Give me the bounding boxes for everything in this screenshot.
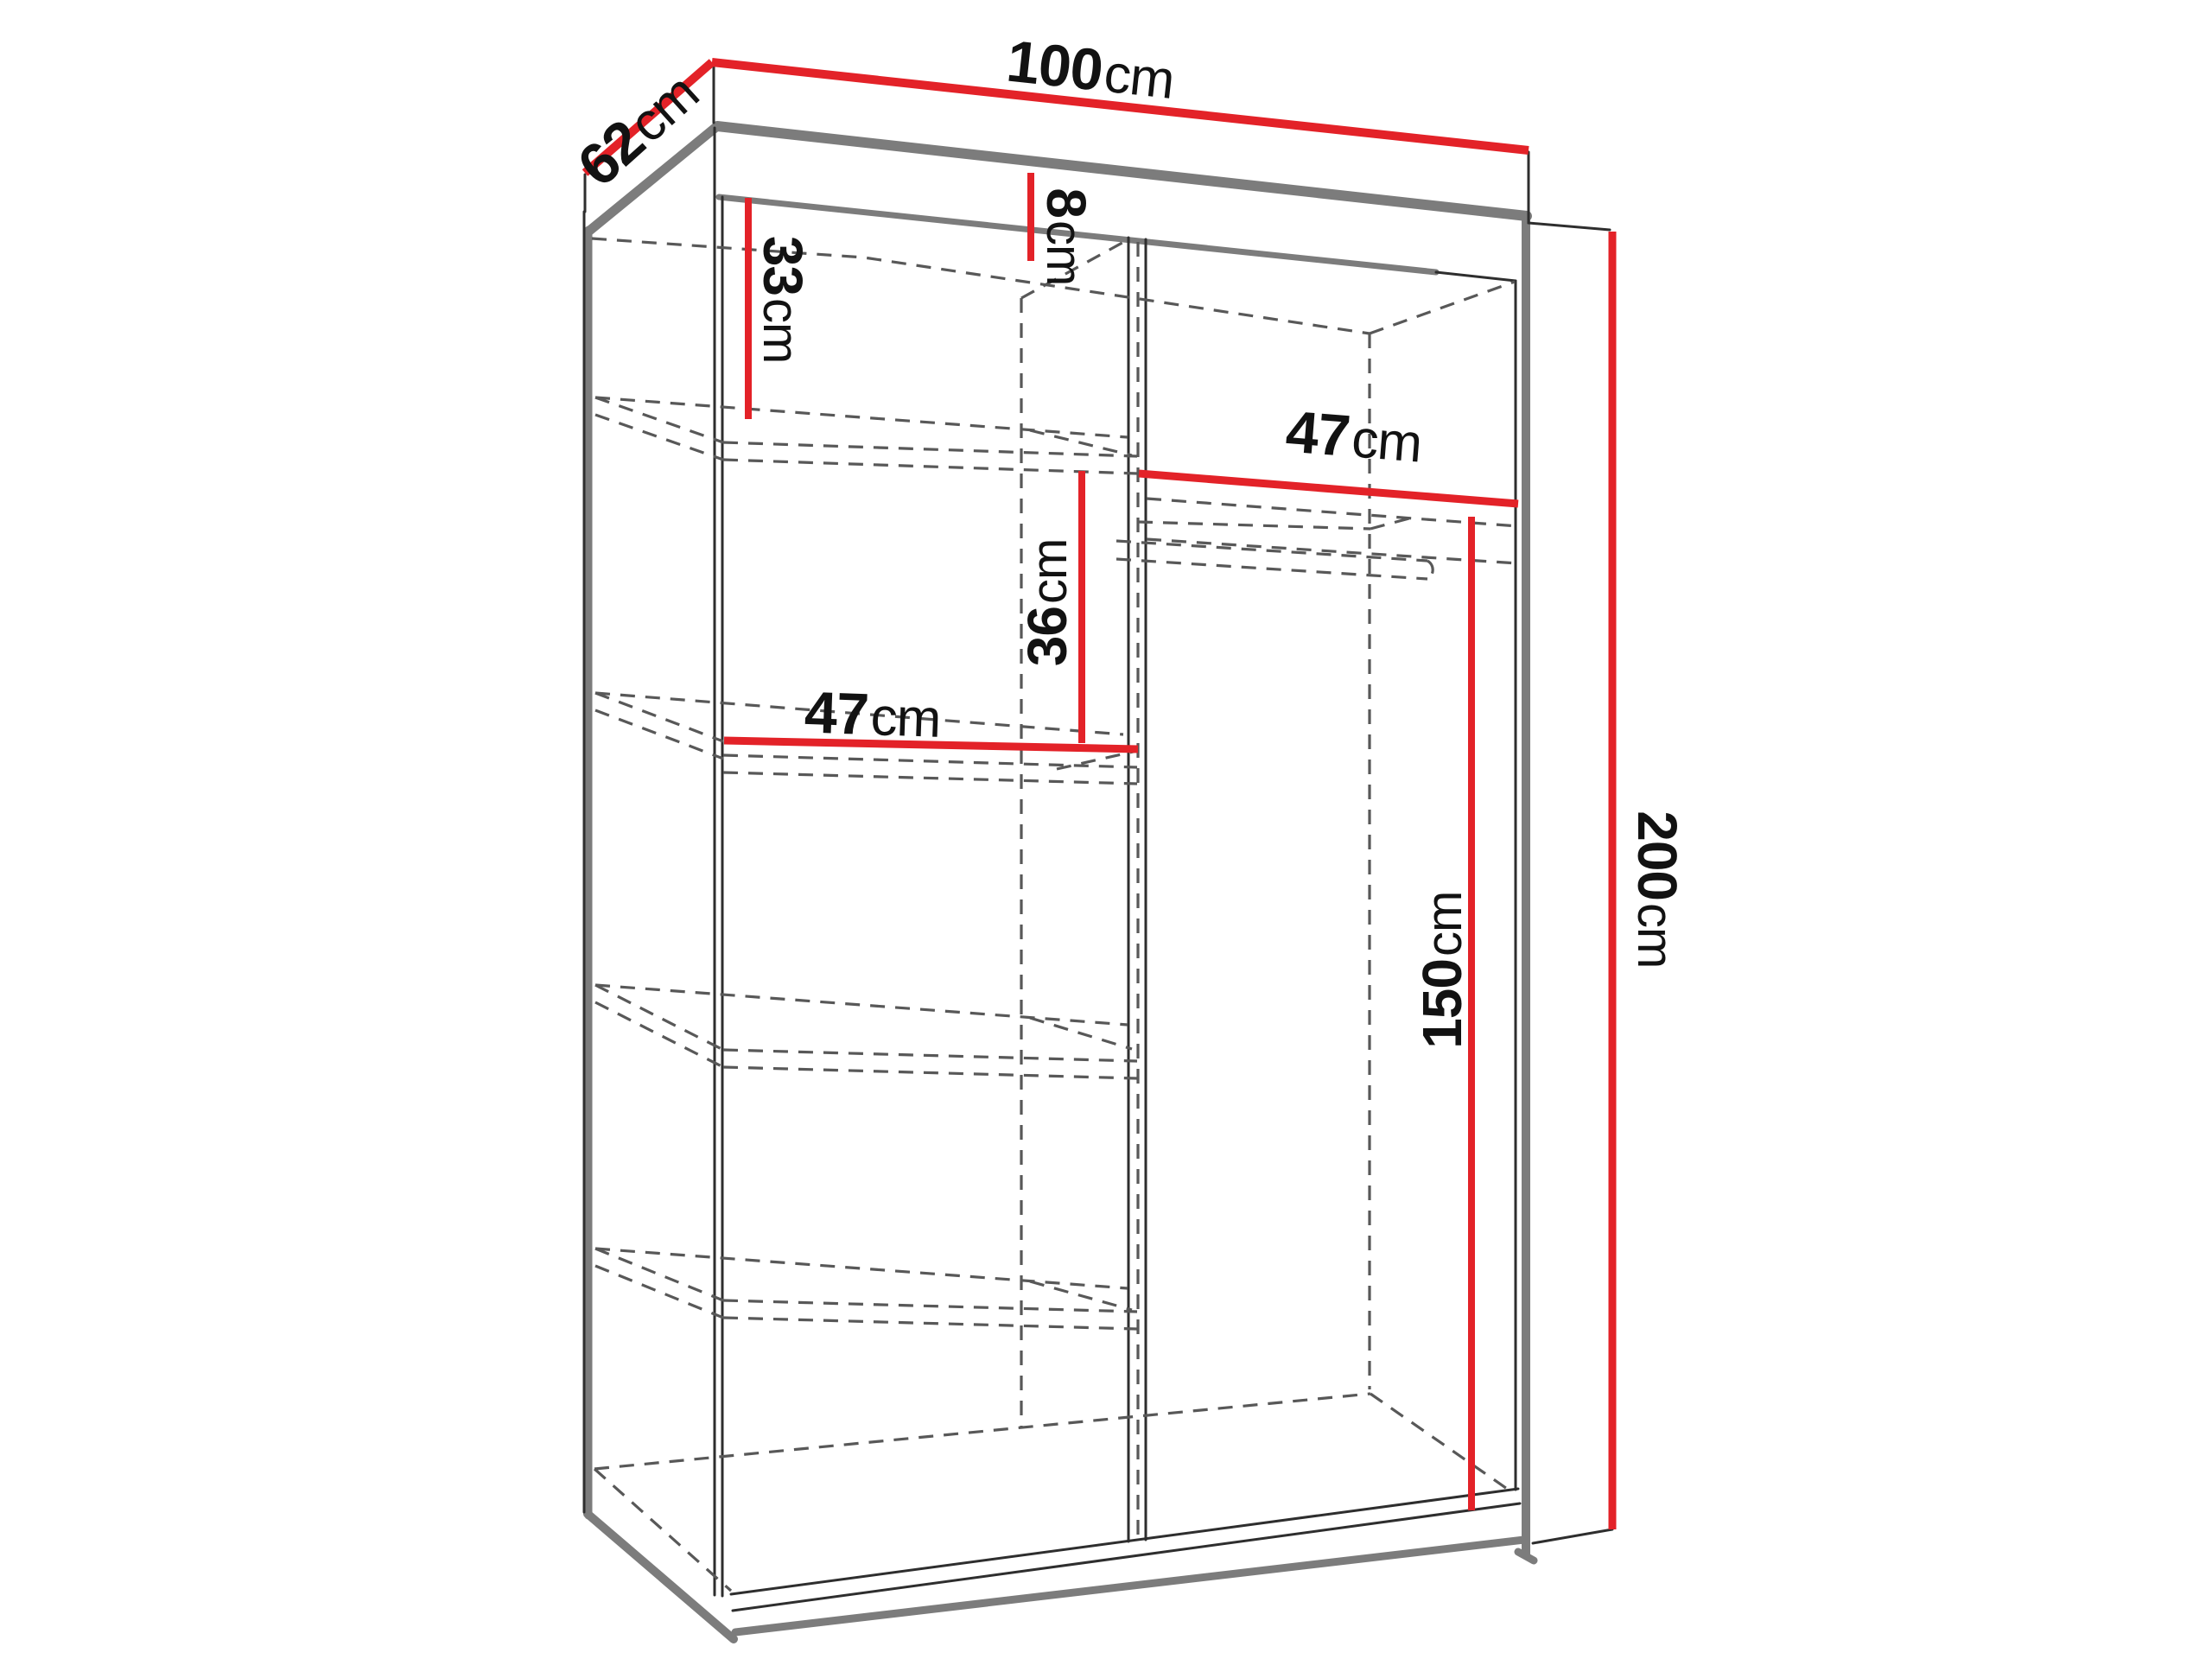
shelf-1-dashed — [595, 397, 1137, 474]
right-foot-shadow — [1518, 1552, 1534, 1560]
outline-lines — [584, 64, 1612, 1611]
svg-text:cm: cm — [1021, 539, 1077, 604]
label-top-8cm: 8 cm — [1035, 188, 1097, 285]
svg-text:cm: cm — [1627, 903, 1683, 968]
label-right-47cm: 47 cm — [1283, 398, 1424, 474]
svg-text:47: 47 — [804, 679, 869, 747]
shelf-4-dashed — [595, 1249, 1137, 1329]
dimension-lines — [585, 62, 1612, 1529]
svg-text:cm: cm — [1416, 892, 1472, 957]
svg-text:47: 47 — [1283, 398, 1351, 469]
label-33cm: 33 cm — [752, 236, 814, 364]
svg-text:33: 33 — [752, 236, 814, 296]
ceiling-right-diag-dashed — [1370, 282, 1515, 334]
label-36cm: 36 cm — [1016, 539, 1078, 667]
svg-text:36: 36 — [1016, 607, 1078, 666]
dimension-labels: 100 cm 62 cm 8 cm 33 cm 47 cm 36 cm 47 c… — [565, 28, 1688, 1048]
top-back-right-edge — [1529, 223, 1610, 230]
svg-text:cm: cm — [1036, 220, 1092, 285]
svg-text:cm: cm — [870, 687, 942, 749]
svg-text:8: 8 — [1035, 188, 1097, 218]
svg-text:cm: cm — [1101, 44, 1177, 111]
svg-text:100: 100 — [1004, 28, 1106, 103]
rod-end-bracket — [1427, 561, 1433, 579]
label-left-47cm: 47 cm — [804, 679, 942, 749]
plinth-top-line — [731, 1489, 1518, 1594]
svg-text:200: 200 — [1626, 810, 1688, 900]
bottom-left-edge — [588, 1514, 734, 1639]
plinth-bottom-edge — [735, 1540, 1524, 1632]
svg-text:cm: cm — [753, 298, 809, 363]
diagram-canvas: 100 cm 62 cm 8 cm 33 cm 47 cm 36 cm 47 c… — [0, 0, 2212, 1659]
bottom-right-edge — [1533, 1529, 1612, 1543]
wardrobe-dimension-diagram: 100 cm 62 cm 8 cm 33 cm 47 cm 36 cm 47 c… — [0, 0, 2212, 1659]
label-200cm: 200 cm — [1626, 810, 1688, 968]
svg-text:cm: cm — [1350, 409, 1424, 474]
carcass-gray-edges — [588, 126, 1534, 1639]
shelf-3-dashed — [595, 985, 1137, 1078]
label-150cm: 150 cm — [1411, 892, 1473, 1049]
dim-line-right-47cm — [1139, 474, 1518, 504]
svg-text:150: 150 — [1411, 959, 1473, 1049]
ceiling-right-thin — [1436, 272, 1516, 281]
